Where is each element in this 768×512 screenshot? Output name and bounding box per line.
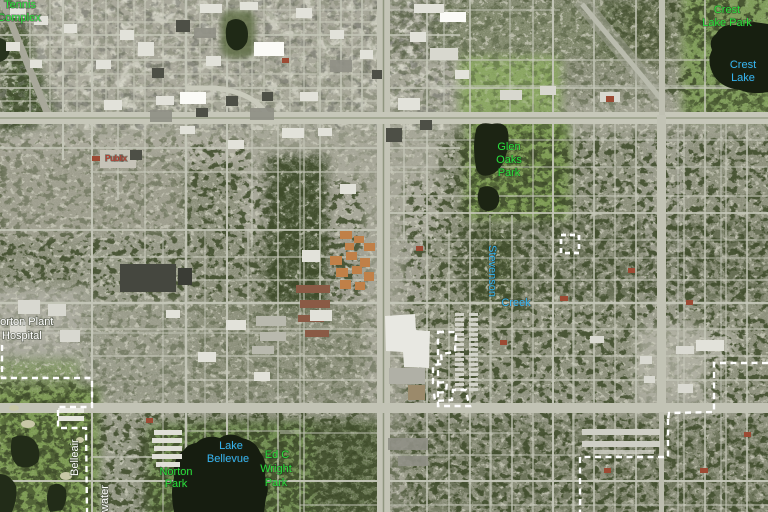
svg-text:Stevenson: Stevenson [486,245,498,297]
svg-text:Crest: Crest [730,59,756,71]
svg-text:Hospital: Hospital [2,330,42,342]
svg-text:Lake: Lake [731,72,755,84]
svg-text:Creek: Creek [501,297,531,309]
svg-text:Tennis: Tennis [4,0,36,11]
svg-text:Publix: Publix [105,154,127,163]
svg-text:Park: Park [165,478,188,490]
svg-text:Complex: Complex [0,12,41,24]
svg-text:Park: Park [498,167,521,179]
svg-text:Morton Plant: Morton Plant [0,316,53,328]
svg-text:water: water [99,485,111,512]
svg-text:Lake Park: Lake Park [702,17,752,29]
svg-text:Ed C: Ed C [265,449,290,461]
svg-text:Oaks: Oaks [496,154,522,166]
svg-text:Glen: Glen [497,141,520,153]
svg-text:Bellevue: Bellevue [207,453,249,465]
svg-text:Park: Park [265,477,288,489]
svg-text:Wright: Wright [260,463,292,475]
svg-text:Belleair: Belleair [69,439,81,476]
svg-text:Lake: Lake [219,440,243,452]
svg-text:Crest: Crest [714,4,740,16]
svg-text:Norton: Norton [159,466,192,478]
